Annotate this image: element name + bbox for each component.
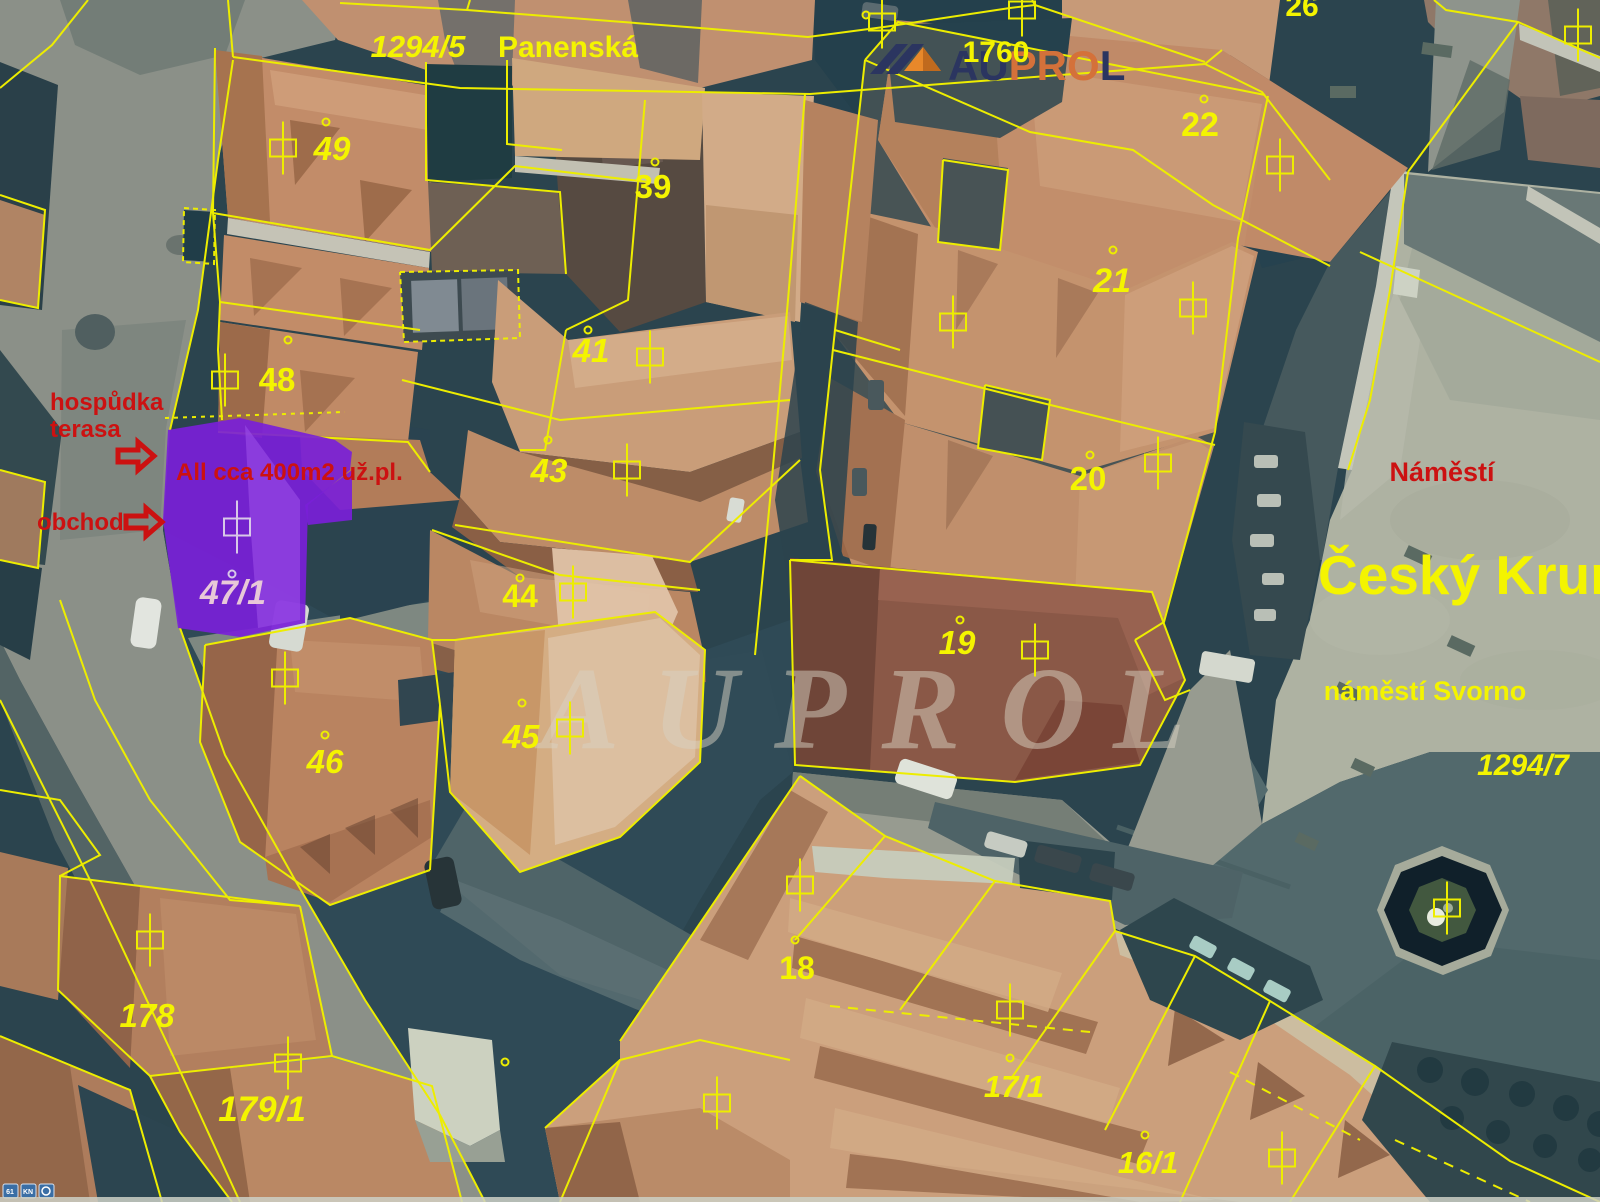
svg-text:KN: KN: [23, 1189, 33, 1196]
svg-text:178: 178: [119, 997, 175, 1034]
svg-text:43: 43: [530, 452, 568, 489]
svg-text:1760: 1760: [963, 36, 1030, 69]
svg-text:48: 48: [259, 361, 296, 398]
svg-text:61: 61: [6, 1189, 14, 1196]
svg-text:20: 20: [1070, 460, 1107, 497]
svg-text:Panenská: Panenská: [498, 31, 638, 64]
svg-text:obchod: obchod: [37, 509, 124, 536]
svg-text:179/1: 179/1: [218, 1090, 306, 1129]
svg-text:U: U: [652, 643, 743, 774]
svg-text:terasa: terasa: [50, 416, 121, 443]
svg-text:21: 21: [1092, 262, 1131, 300]
svg-text:Český Krum: Český Krum: [1318, 544, 1600, 606]
svg-text:46: 46: [306, 743, 344, 780]
svg-text:1294/7: 1294/7: [1477, 749, 1570, 782]
svg-text:A: A: [534, 643, 620, 774]
svg-text:22: 22: [1181, 106, 1219, 144]
svg-text:47/1: 47/1: [199, 574, 266, 612]
svg-text:All cca 400m2 už.pl.: All cca 400m2 už.pl.: [176, 459, 403, 486]
svg-text:1294/5: 1294/5: [371, 29, 467, 64]
svg-text:17/1: 17/1: [984, 1069, 1044, 1104]
svg-text:26: 26: [1285, 0, 1318, 23]
svg-text:19: 19: [939, 624, 976, 661]
svg-text:O: O: [1000, 643, 1085, 774]
svg-text:R: R: [881, 643, 961, 774]
svg-text:18: 18: [779, 950, 815, 986]
svg-text:41: 41: [572, 332, 610, 369]
svg-text:náměstí Svorno: náměstí Svorno: [1324, 676, 1527, 706]
svg-text:45: 45: [502, 718, 540, 755]
svg-text:49: 49: [313, 130, 351, 167]
svg-text:Náměstí: Náměstí: [1389, 457, 1496, 487]
svg-text:P: P: [773, 643, 847, 774]
svg-text:39: 39: [635, 168, 672, 205]
svg-text:16/1: 16/1: [1118, 1145, 1178, 1180]
svg-text:44: 44: [502, 578, 538, 614]
svg-text:hospůdka: hospůdka: [50, 389, 164, 416]
svg-text:L: L: [1112, 643, 1185, 774]
